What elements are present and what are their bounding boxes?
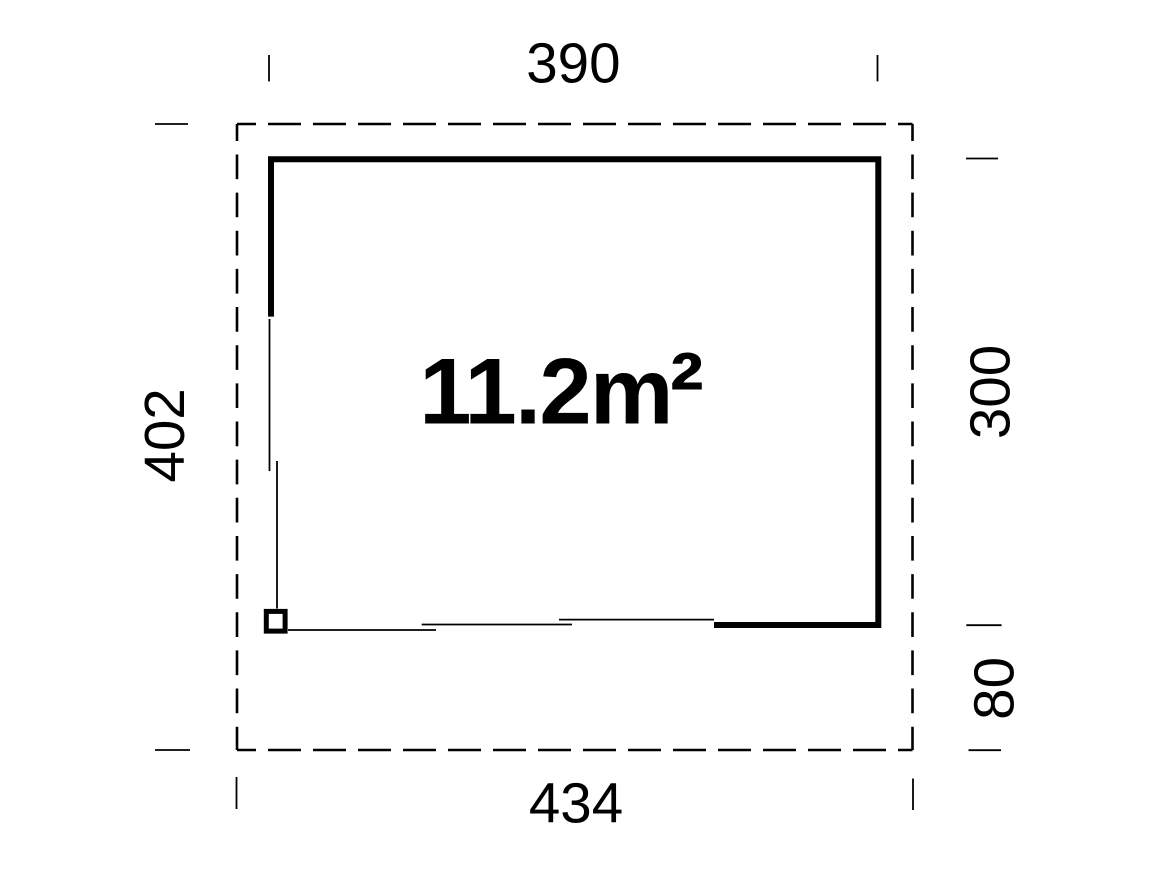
- svg-text:11.2m²: 11.2m²: [419, 332, 702, 447]
- svg-text:80: 80: [962, 657, 1025, 720]
- svg-text:300: 300: [959, 345, 1022, 439]
- svg-text:390: 390: [526, 32, 620, 95]
- svg-text:402: 402: [133, 388, 196, 482]
- svg-text:434: 434: [529, 772, 623, 835]
